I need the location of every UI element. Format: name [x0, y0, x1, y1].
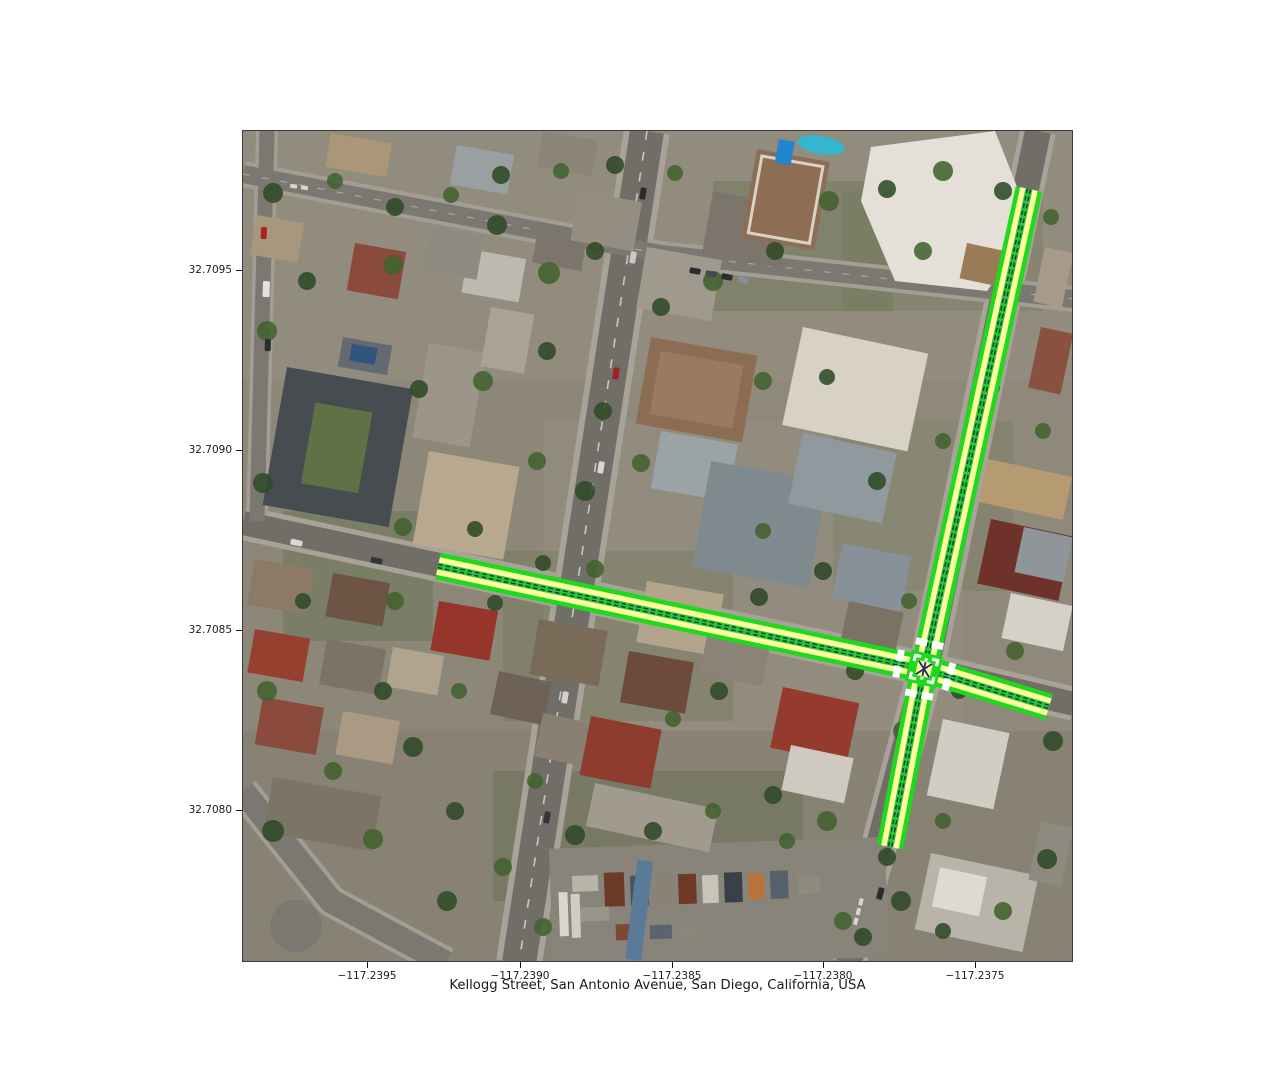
y-tick-mark [236, 450, 242, 451]
y-tick-mark [236, 630, 242, 631]
map-axes [242, 130, 1073, 962]
x-tick-mark [520, 962, 521, 968]
x-tick-mark [823, 962, 824, 968]
matplotlib-figure: 32.709532.709032.708532.7080 −117.2395−1… [0, 0, 1283, 1080]
y-tick-mark [236, 270, 242, 271]
y-tick-mark [236, 810, 242, 811]
y-tick-label: 32.7080 [0, 805, 232, 816]
storage-lot [549, 837, 889, 962]
x-axis-label: Kellogg Street, San Antonio Avenue, San … [242, 978, 1073, 994]
y-tick-label: 32.7095 [0, 265, 232, 276]
x-tick-mark [672, 962, 673, 968]
x-tick-mark [367, 962, 368, 968]
y-tick-label: 32.7085 [0, 625, 232, 636]
y-tick-label: 32.7090 [0, 445, 232, 456]
x-tick-mark [975, 962, 976, 968]
satellite-map [243, 131, 1073, 962]
